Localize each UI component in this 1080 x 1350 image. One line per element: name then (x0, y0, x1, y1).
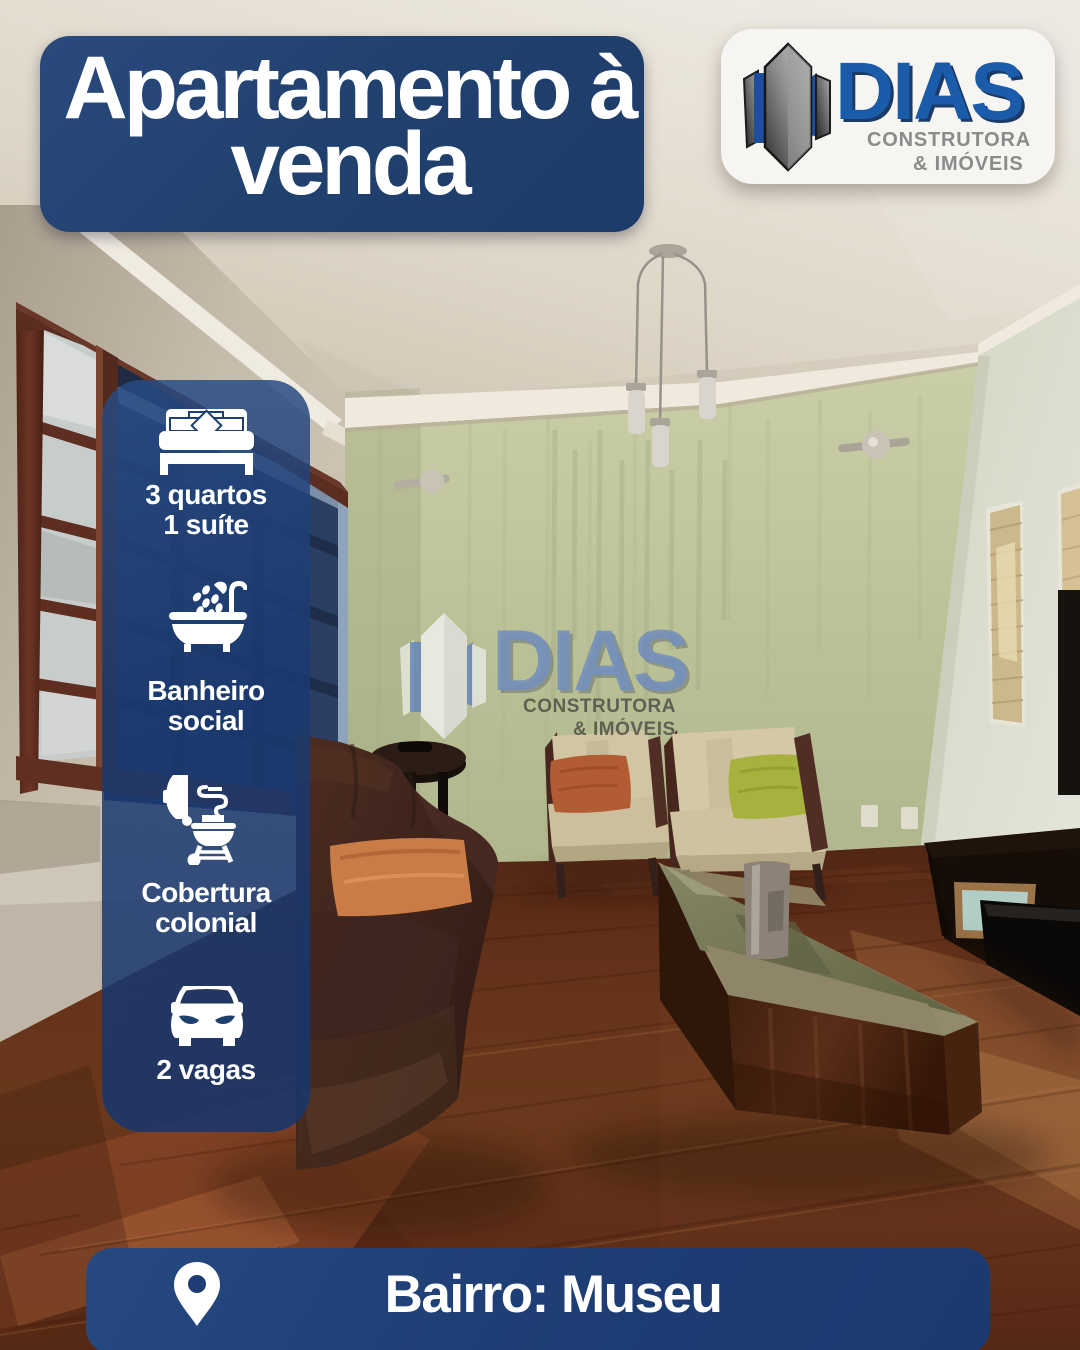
svg-text:CONSTRUTORA: CONSTRUTORA (867, 129, 1031, 151)
svg-text:DIAS: DIAS (835, 46, 1023, 137)
svg-text:& IMÓVEIS: & IMÓVEIS (573, 718, 676, 740)
svg-text:CONSTRUTORA: CONSTRUTORA (523, 696, 676, 717)
svg-text:& IMÓVEIS: & IMÓVEIS (913, 151, 1024, 175)
svg-text:DIAS: DIAS (492, 613, 687, 709)
